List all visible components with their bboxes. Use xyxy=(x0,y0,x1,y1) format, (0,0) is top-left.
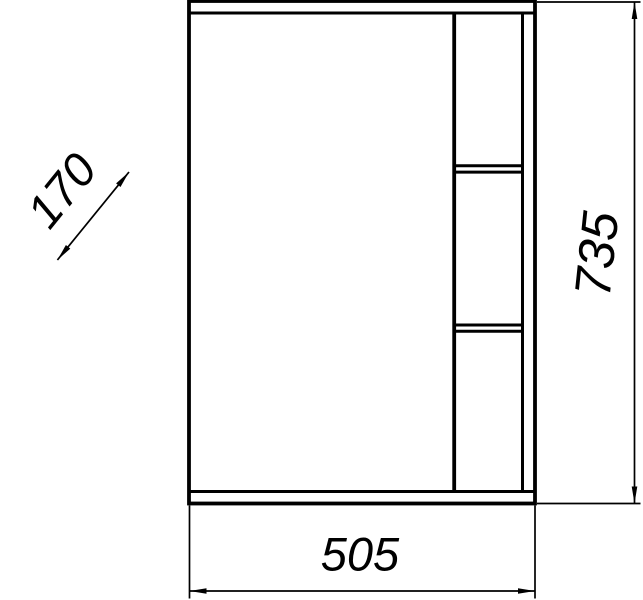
svg-text:505: 505 xyxy=(321,528,400,581)
svg-text:735: 735 xyxy=(564,208,630,299)
svg-text:170: 170 xyxy=(16,143,107,237)
